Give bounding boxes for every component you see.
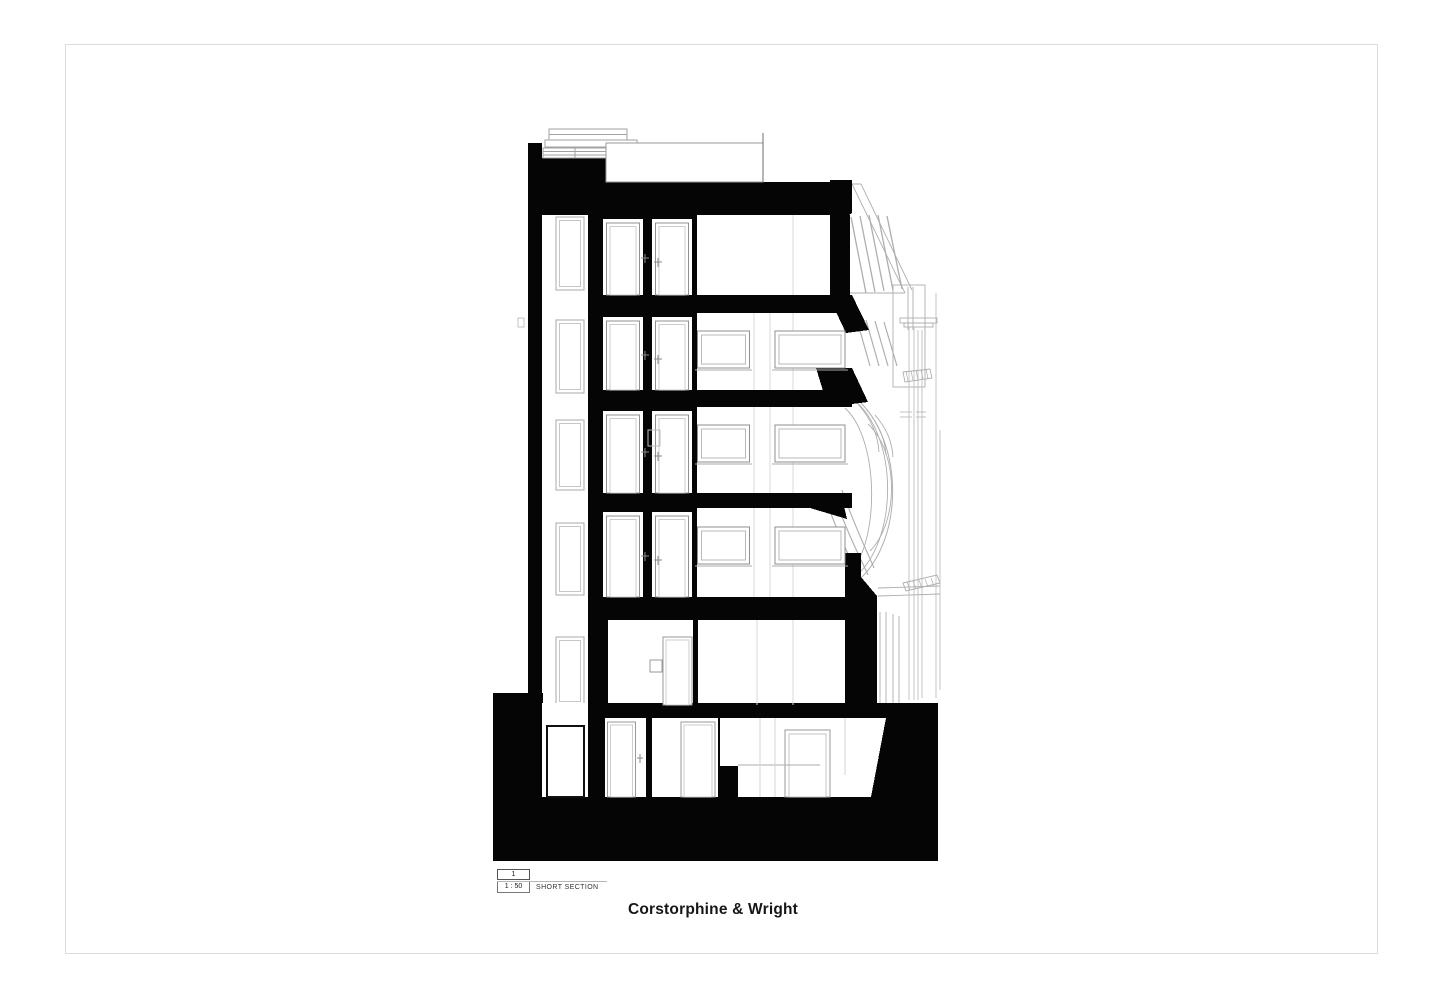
room-windows xyxy=(695,215,848,705)
detail-number-box: 1 xyxy=(497,869,530,880)
shaft-windows xyxy=(556,217,584,705)
titleblock: 1 1 : 50 SHORT SECTION xyxy=(497,869,607,893)
firm-wordmark: Corstorphine & Wright xyxy=(493,901,933,919)
drawing-scale: 1 : 50 xyxy=(497,882,530,893)
drawing-title: SHORT SECTION xyxy=(530,882,599,893)
drawing-sheet-page: 1 1 : 50 SHORT SECTION Corstorphine & Wr… xyxy=(0,0,1443,1000)
short-section-drawing xyxy=(0,0,1443,1000)
detail-number: 1 xyxy=(512,871,516,878)
ground-floor-interior xyxy=(650,637,692,705)
titleblock-row: 1 : 50 SHORT SECTION xyxy=(497,881,607,893)
